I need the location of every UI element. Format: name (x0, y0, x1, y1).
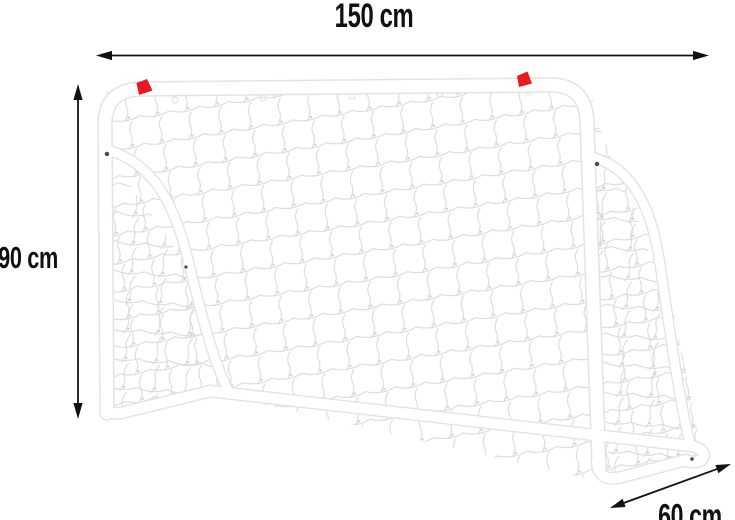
screw (105, 152, 109, 156)
screw (184, 265, 187, 268)
screw (595, 162, 599, 166)
depth-arrowhead-back (715, 464, 731, 473)
width-arrowhead-left (96, 51, 112, 60)
height-arrowhead-bottom (73, 403, 82, 419)
depth-arrowhead-front (610, 499, 626, 508)
width-dimension-label: 150 cm (318, 0, 430, 33)
product-dimension-diagram: 150 cm 90 cm 60 cm (0, 0, 735, 520)
goal-diagram-canvas (0, 0, 735, 520)
height-arrowhead-top (73, 84, 82, 100)
screw (690, 457, 694, 461)
depth-dimension-label: 60 cm (634, 499, 735, 520)
width-arrowhead-right (693, 51, 709, 60)
height-dimension-label: 90 cm (0, 242, 84, 273)
